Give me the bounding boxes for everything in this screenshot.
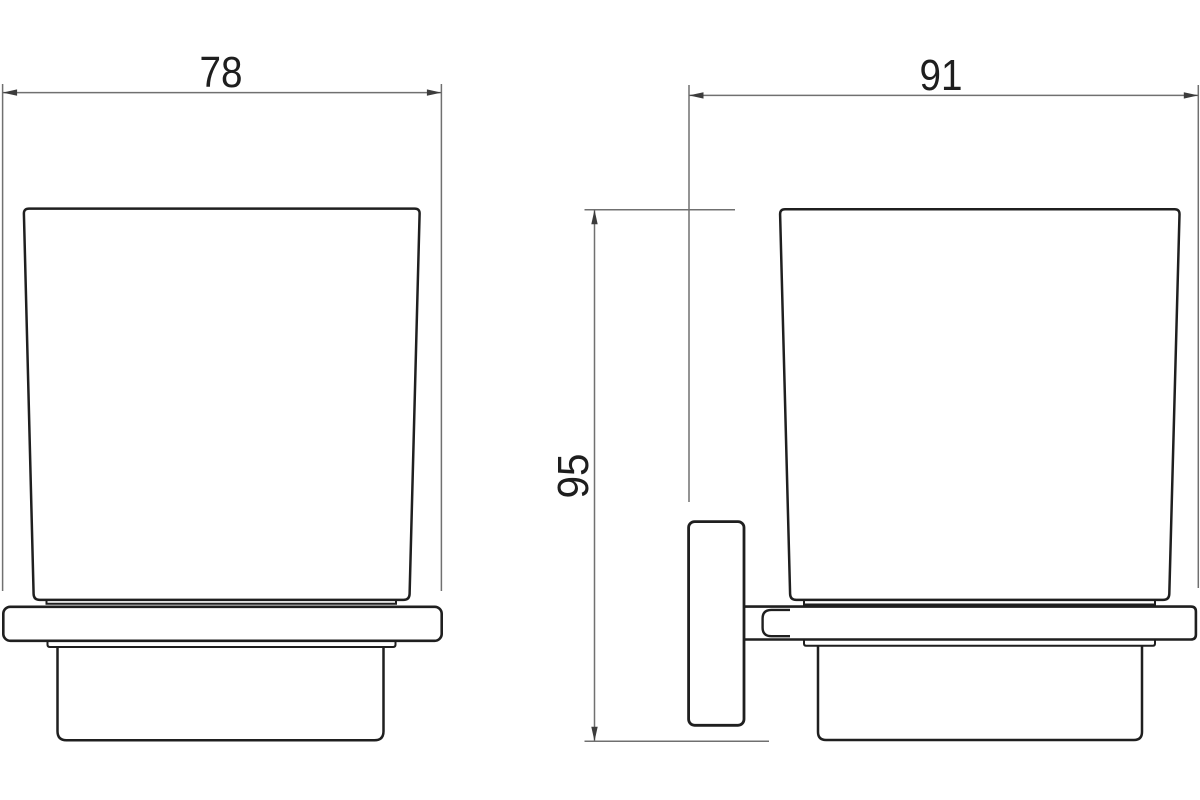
svg-text:78: 78: [200, 48, 243, 97]
svg-text:95: 95: [549, 454, 598, 499]
svg-text:91: 91: [920, 51, 963, 100]
